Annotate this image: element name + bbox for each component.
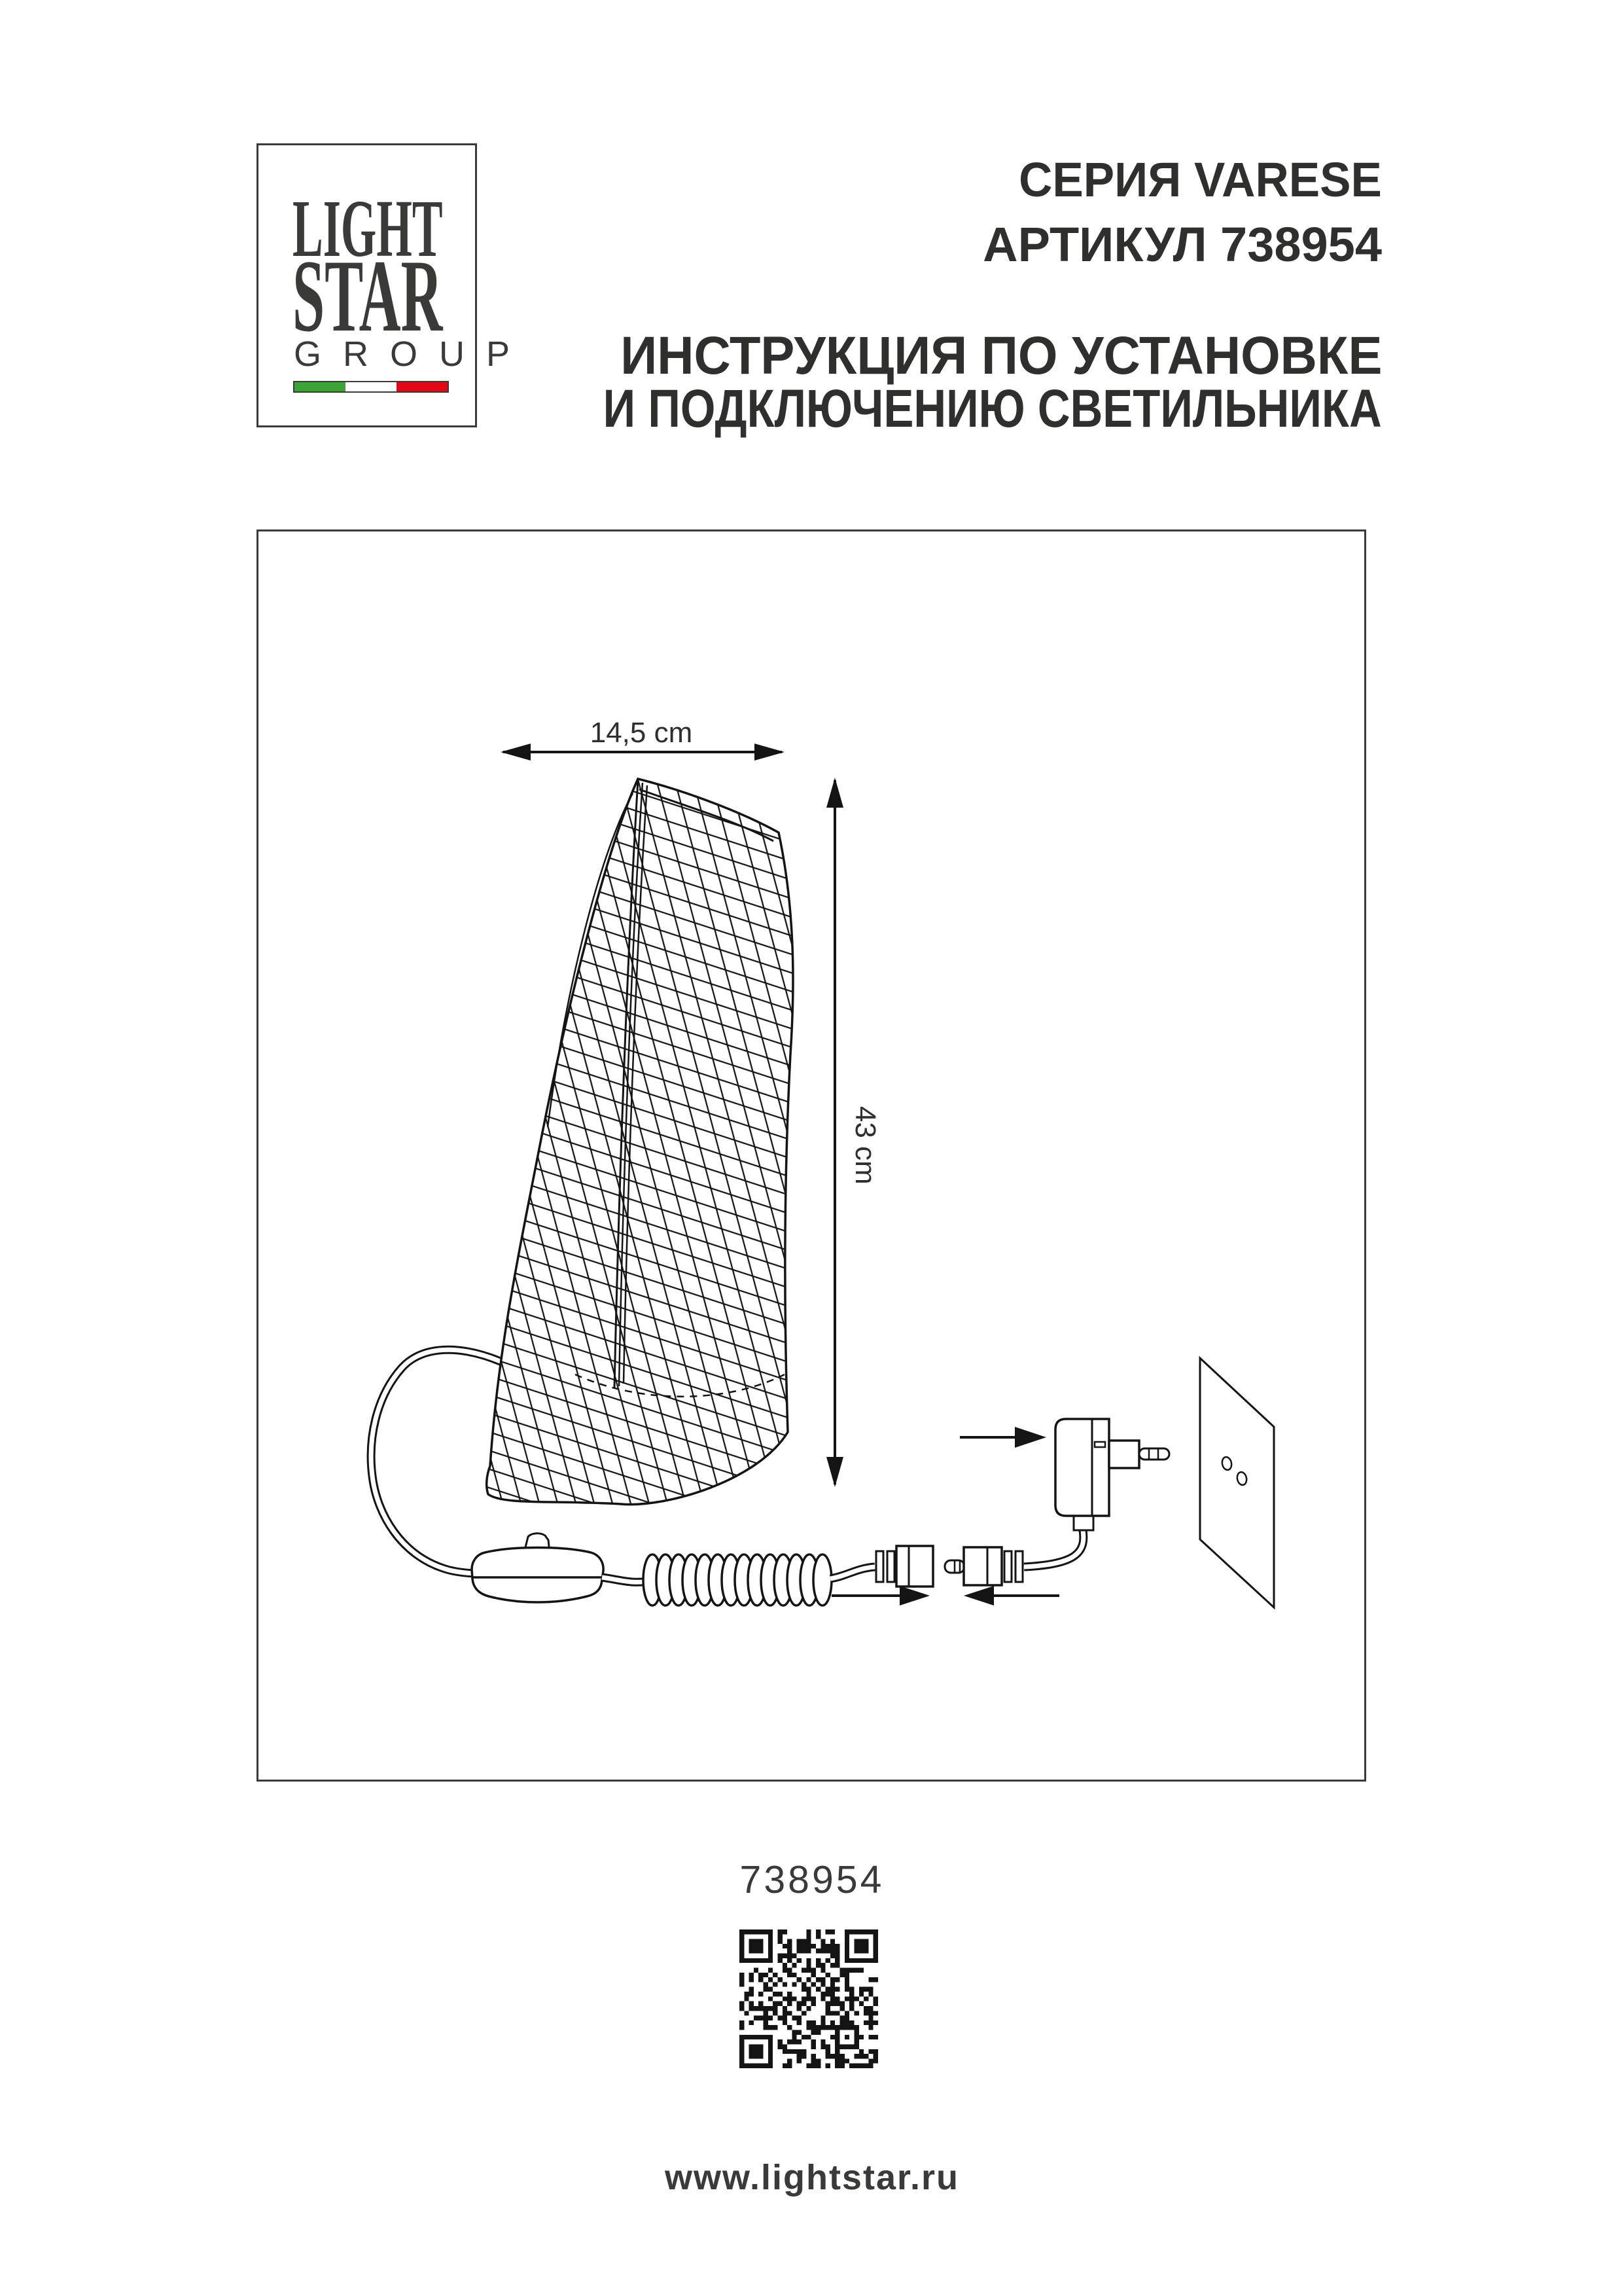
adapter-cable xyxy=(1024,1530,1084,1567)
italian-flag-icon xyxy=(293,381,449,393)
qr-code xyxy=(739,1929,878,2068)
coiled-cable xyxy=(643,1554,832,1605)
plug-body xyxy=(1109,1441,1139,1468)
adapter-arrow xyxy=(960,1427,1046,1448)
instruction-title-line2: И ПОДКЛЮЧЕНИЮ СВЕТИЛЬНИКА xyxy=(603,382,1382,436)
diagram-frame: 14,5 cm 43 cm xyxy=(256,529,1366,1782)
installation-diagram xyxy=(258,531,1364,1780)
power-adapter xyxy=(1055,1419,1169,1530)
flag-green-segment xyxy=(294,382,345,391)
flag-red-segment xyxy=(397,382,448,391)
lamp-shade xyxy=(451,759,830,1518)
dc-connector-male xyxy=(945,1547,1023,1585)
instruction-title-line1: ИНСТРУКЦИЯ ПО УСТАНОВКЕ xyxy=(620,329,1382,383)
height-dimension-arrow xyxy=(826,778,843,1487)
width-dimension-label: 14,5 cm xyxy=(576,719,707,747)
wall-outlet-plate xyxy=(1200,1358,1274,1607)
lightstar-logo: LIGHT STAR G R O U P xyxy=(256,143,477,427)
dc-connector-female xyxy=(876,1546,933,1587)
height-dimension-label: 43 cm xyxy=(851,1106,879,1185)
mesh-pattern xyxy=(451,759,830,1518)
logo-group-text: G R O U P xyxy=(294,336,516,372)
logo-star-text: STAR xyxy=(292,245,442,348)
connect-arrow-left xyxy=(832,1586,930,1605)
article-title: АРТИКУЛ 738954 xyxy=(983,221,1382,269)
series-title: СЕРИЯ VARESE xyxy=(1019,156,1382,204)
instruction-page: LIGHT STAR G R O U P СЕРИЯ VARESE АРТИКУ… xyxy=(0,0,1624,2296)
article-number: 738954 xyxy=(0,1861,1624,1899)
website-url: www.lightstar.ru xyxy=(0,2160,1624,2195)
plug-pin xyxy=(1139,1448,1169,1460)
flag-white-segment xyxy=(345,382,397,391)
connect-arrow-right xyxy=(964,1586,1059,1605)
inline-switch xyxy=(472,1534,603,1602)
